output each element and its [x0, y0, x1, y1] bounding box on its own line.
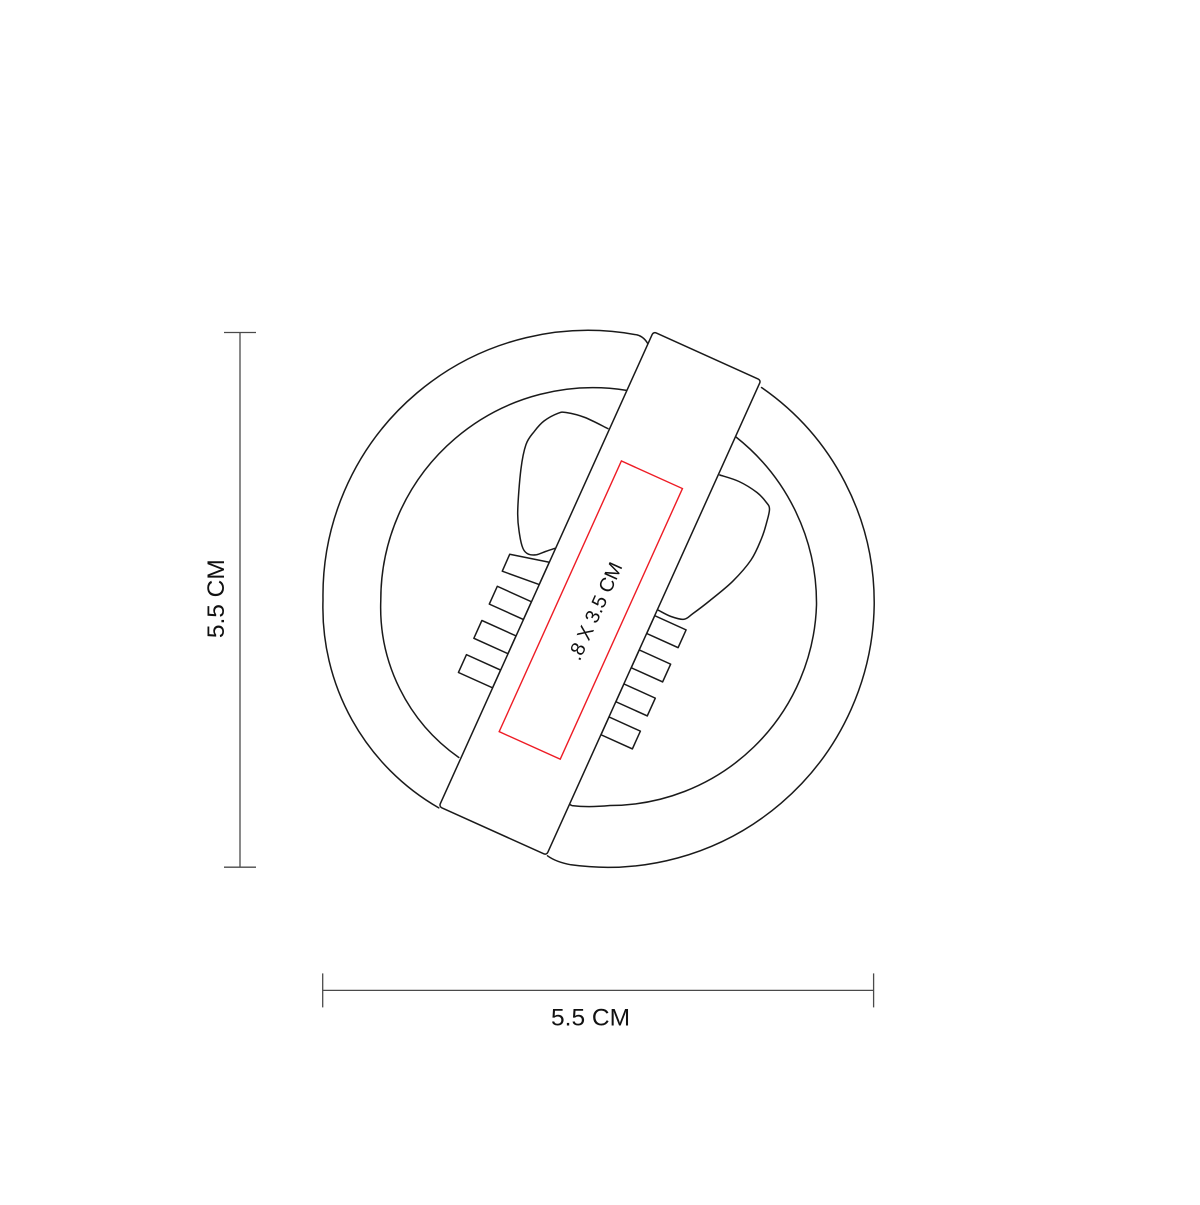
svg-text:5.5 CM: 5.5 CM [551, 1005, 630, 1032]
svg-text:5.5 CM: 5.5 CM [203, 559, 230, 638]
